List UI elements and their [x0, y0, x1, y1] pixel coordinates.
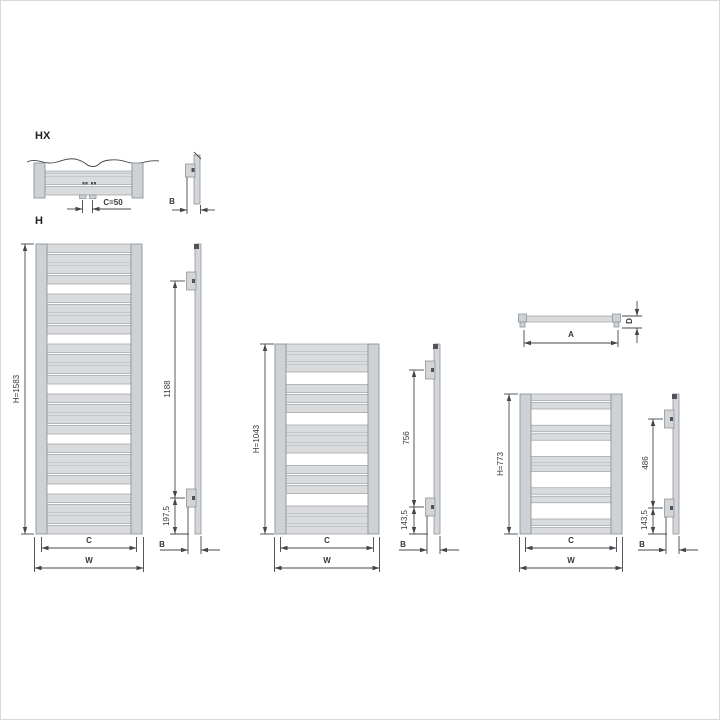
- section-title-h: H: [35, 216, 43, 227]
- arrowhead: [93, 207, 100, 211]
- radiator-bar: [47, 494, 131, 503]
- radiator-bar: [45, 176, 132, 185]
- radiator-bar: [47, 394, 131, 403]
- arrowhead: [610, 546, 617, 550]
- arrowhead: [651, 508, 655, 515]
- radiator-bar: [47, 426, 131, 435]
- bracket-pin: [431, 368, 434, 372]
- pipe-stub: [520, 322, 525, 327]
- radiator-bar: [47, 505, 131, 514]
- r3-height-label: H=773: [497, 452, 505, 476]
- radiator-bar: [45, 187, 132, 196]
- radiator-bar: [286, 354, 368, 362]
- arrowhead: [651, 501, 655, 508]
- element-mark: [86, 182, 88, 185]
- element-mark: [94, 182, 96, 185]
- radiator-bar: [531, 496, 611, 503]
- r3-overall-width-label: W: [567, 557, 575, 565]
- section-title-hx: HX: [35, 131, 50, 142]
- arrowhead: [373, 566, 380, 570]
- arrowhead: [635, 328, 639, 335]
- air-vent: [672, 394, 677, 399]
- radiator-1043-front: [260, 344, 380, 572]
- arrowhead: [275, 566, 282, 570]
- radiator-bar: [531, 394, 611, 401]
- radiator-bar: [286, 516, 368, 524]
- radiator-bar: [47, 305, 131, 314]
- arrowhead: [611, 341, 618, 345]
- arrowhead: [130, 546, 137, 550]
- collector-tube-left: [34, 163, 45, 198]
- radiator-bar: [531, 488, 611, 495]
- arrowhead: [412, 500, 416, 507]
- radiator-bar: [531, 457, 611, 464]
- collector-tube-right: [132, 163, 143, 198]
- radiator-bar: [286, 486, 368, 494]
- arrowhead: [23, 527, 27, 534]
- bracket-pin: [670, 417, 673, 421]
- radiator-bar: [286, 466, 368, 474]
- r1-bracket-span-label: 1188: [164, 380, 172, 397]
- top-view-bar: [524, 316, 618, 322]
- air-vent: [433, 344, 438, 349]
- collector-tube-left: [36, 244, 47, 534]
- r3-bracket-span-label: 486: [642, 456, 650, 469]
- radiator-bar: [47, 276, 131, 285]
- radiator-bar: [47, 355, 131, 364]
- arrowhead: [263, 344, 267, 351]
- arrowhead: [173, 498, 177, 505]
- arrowhead: [412, 527, 416, 534]
- arrowhead: [137, 566, 144, 570]
- radiator-bar: [47, 526, 131, 535]
- radiator-bar: [531, 465, 611, 472]
- radiator-bar: [47, 265, 131, 274]
- arrowhead: [281, 546, 288, 550]
- arrowhead: [420, 548, 427, 552]
- r2-overall-width-label: W: [323, 557, 331, 565]
- bracket-pin: [192, 279, 195, 283]
- arrowhead: [35, 566, 42, 570]
- radiator-bar: [286, 385, 368, 393]
- radiator-bar: [286, 506, 368, 514]
- r1-depth-label: B: [159, 541, 165, 549]
- radiator-bar: [47, 365, 131, 374]
- r3-depth-label: B: [639, 541, 645, 549]
- arrowhead: [180, 208, 187, 212]
- radiator-bar: [47, 476, 131, 485]
- arrowhead: [173, 527, 177, 534]
- radiator-bar: [286, 435, 368, 443]
- arrowhead: [76, 207, 83, 211]
- air-vent: [194, 244, 199, 249]
- end-fitting: [613, 314, 621, 322]
- radiator-bar: [47, 255, 131, 264]
- collector-tube-right: [368, 344, 379, 534]
- arrowhead: [651, 527, 655, 534]
- radiator-bar: [286, 364, 368, 372]
- radiator-bar: [47, 344, 131, 353]
- r1-height-label: H=1583: [13, 375, 21, 403]
- radiator-bar: [531, 425, 611, 432]
- r2-depth-label: B: [400, 541, 406, 549]
- element-mark: [83, 182, 85, 185]
- collector-tube-left: [275, 344, 286, 534]
- radiator-bar: [45, 171, 132, 174]
- radiator-773-front: [504, 394, 623, 572]
- radiator-bar: [286, 344, 368, 352]
- r2-bracket-offset-label: 143,5: [401, 510, 409, 530]
- radiator-bar: [286, 445, 368, 453]
- radiator-bar: [47, 405, 131, 414]
- radiator-bar: [286, 425, 368, 433]
- r2-connection-width-label: C: [324, 537, 330, 545]
- side-profile: [194, 155, 200, 204]
- arrowhead: [23, 244, 27, 251]
- r3-connection-width-label: C: [568, 537, 574, 545]
- hx-depth-label: B: [169, 198, 175, 206]
- radiator-bar: [531, 519, 611, 526]
- r1-connection-width-label: C: [86, 537, 92, 545]
- arrowhead: [659, 548, 666, 552]
- arrowhead: [412, 507, 416, 514]
- arrowhead: [201, 548, 208, 552]
- radiator-bar: [47, 515, 131, 524]
- arrowhead: [651, 419, 655, 426]
- arrowhead: [201, 208, 208, 212]
- hx-pipe-spacing-label: C=50: [103, 199, 122, 207]
- hx-side-view: [172, 152, 215, 214]
- arrowhead: [507, 527, 511, 534]
- radiator-bar: [47, 326, 131, 335]
- arrowhead: [526, 546, 533, 550]
- top-view-width-label: A: [568, 331, 574, 339]
- arrowhead: [679, 548, 686, 552]
- bracket-pin: [192, 496, 195, 500]
- hx-front-view: [27, 159, 159, 213]
- radiator-bar: [531, 403, 611, 410]
- radiator-bar: [47, 415, 131, 424]
- arrowhead: [181, 548, 188, 552]
- top-view-depth-label: D: [626, 318, 634, 324]
- arrowhead: [507, 394, 511, 401]
- arrowhead: [635, 309, 639, 316]
- r2-height-label: H=1043: [253, 425, 261, 453]
- arrowhead: [440, 548, 447, 552]
- arrowhead: [42, 546, 49, 550]
- radiator-bar: [47, 294, 131, 303]
- technical-drawing-page: HX H C=50 B H=1583 1188 197,5 B C W H=10…: [0, 0, 720, 720]
- arrowhead: [524, 341, 531, 345]
- end-fitting: [519, 314, 527, 322]
- radiator-1583-front: [21, 244, 144, 572]
- arrowhead: [367, 546, 374, 550]
- pipe-stub: [614, 322, 619, 327]
- arrowhead: [520, 566, 527, 570]
- radiator-bar: [47, 376, 131, 385]
- bracket-pin: [192, 168, 195, 172]
- bracket-pin: [431, 505, 434, 509]
- radiator-bar: [286, 476, 368, 484]
- radiator-bar: [531, 434, 611, 441]
- arrowhead: [173, 281, 177, 288]
- arrowhead: [412, 370, 416, 377]
- radiator-bar: [47, 455, 131, 464]
- radiator-bar: [47, 465, 131, 474]
- radiator-bar: [47, 315, 131, 324]
- r2-bracket-span-label: 756: [403, 431, 411, 444]
- radiator-bar: [286, 526, 368, 534]
- collector-tube-left: [520, 394, 531, 534]
- collector-tube-right: [131, 244, 142, 534]
- radiator-bar: [47, 244, 131, 253]
- r1-bracket-offset-label: 197,5: [163, 506, 171, 526]
- radiator-drawing-canvas: [1, 1, 719, 719]
- arrowhead: [263, 527, 267, 534]
- radiator-bar: [286, 405, 368, 413]
- pipe-stub: [90, 195, 97, 199]
- radiator-bar: [286, 395, 368, 403]
- collector-tube-right: [611, 394, 622, 534]
- r1-overall-width-label: W: [85, 557, 93, 565]
- arrowhead: [173, 491, 177, 498]
- arrowhead: [616, 566, 623, 570]
- radiator-top-view: [519, 301, 643, 347]
- r3-bracket-offset-label: 143,5: [641, 510, 649, 530]
- pipe-stub: [80, 195, 87, 199]
- bracket-pin: [670, 506, 673, 510]
- element-mark: [91, 182, 93, 185]
- radiator-bar: [531, 528, 611, 535]
- radiator-bar: [47, 444, 131, 453]
